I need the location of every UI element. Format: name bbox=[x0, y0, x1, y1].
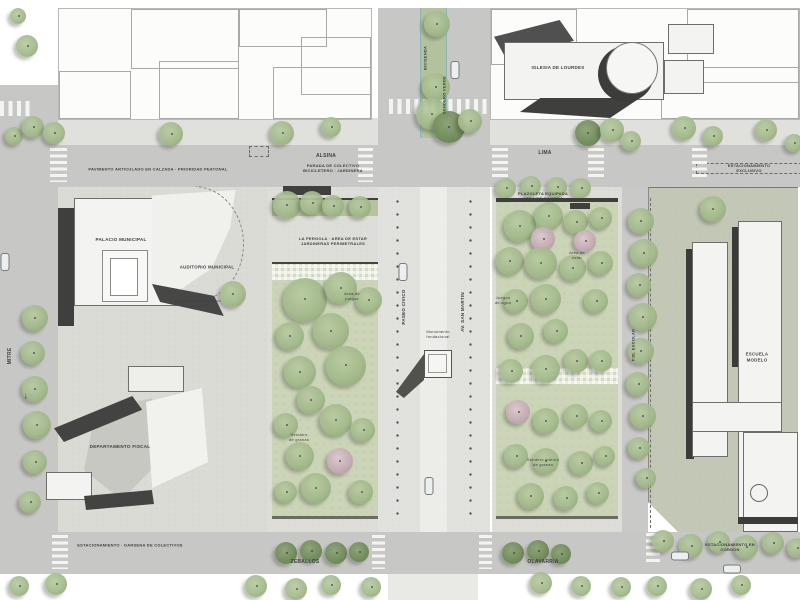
gravel-note-left: Sendero de granza bbox=[289, 432, 309, 442]
school-lane: PJE. ESCOLAR bbox=[631, 329, 636, 361]
palacio-label: PALACIO MUNICIPAL bbox=[95, 237, 146, 243]
street-mitre: MITRE bbox=[7, 348, 13, 365]
street-alsina: ALSINA bbox=[316, 153, 336, 159]
mall-name-east: AV. SAN MARTIN bbox=[460, 292, 466, 332]
one-way-arrow: ↓ bbox=[24, 390, 29, 401]
street-lima: LIMA bbox=[538, 150, 551, 156]
street-olavarria: OLAVARRIA bbox=[527, 559, 558, 565]
curb-parking-note: ESTACIONAMIENTO EN CORDON bbox=[695, 542, 765, 552]
water-note: Juegos de agua bbox=[495, 295, 511, 305]
mall-name-west: PASEO CIVICO bbox=[401, 289, 407, 324]
parking-note-top: ESTACIONAMIENTO EXCLUSIVO bbox=[724, 163, 775, 173]
site-plan: IGLESIA DE LOURDESALSINALIMAPAVIMENTO AR… bbox=[0, 0, 800, 600]
fiscal-label: DEPARTAMENTO FISCAL bbox=[90, 444, 151, 450]
auditorio-label: AUDITORIO MUNICIPAL bbox=[180, 264, 235, 270]
church-label: IGLESIA DE LOURDES bbox=[531, 65, 584, 71]
school-label: ESCUELA MODELO bbox=[736, 352, 779, 363]
playground-note: Area de juegos bbox=[344, 291, 360, 301]
gravel-note-right: Sendero interno de granza bbox=[527, 457, 559, 467]
stairs-note: Escalera de desembarco al patio civico bbox=[171, 298, 221, 308]
pergola-note: LA PERGOLA · AREA DE ESTAR JARDINERAS PE… bbox=[299, 236, 367, 246]
bike-lane-note: BICISENDA bbox=[423, 46, 428, 70]
monument-note: Monumento fundacional bbox=[426, 329, 449, 339]
bus-bay-note: ESTACIONAMIENTO · DARSENA DE COLECTIVOS bbox=[77, 543, 182, 548]
green-path-note: SENDERO VERDE bbox=[442, 76, 447, 114]
paving-note: PAVIMENTO ARTICULADO EN CALZADA · PRIORI… bbox=[88, 167, 227, 172]
label-layer: IGLESIA DE LOURDESALSINALIMAPAVIMENTO AR… bbox=[0, 0, 800, 600]
street-zeballos: ZEBALLOS bbox=[291, 559, 320, 565]
bus-stop-note: PARADA DE COLECTIVO BICICLETERO · JARDIN… bbox=[303, 163, 363, 173]
seating-note: Area de estar bbox=[569, 250, 585, 260]
plazoleta-note: PLAZOLETA EQUIPADA AREA DE SOMBRA bbox=[518, 191, 568, 201]
